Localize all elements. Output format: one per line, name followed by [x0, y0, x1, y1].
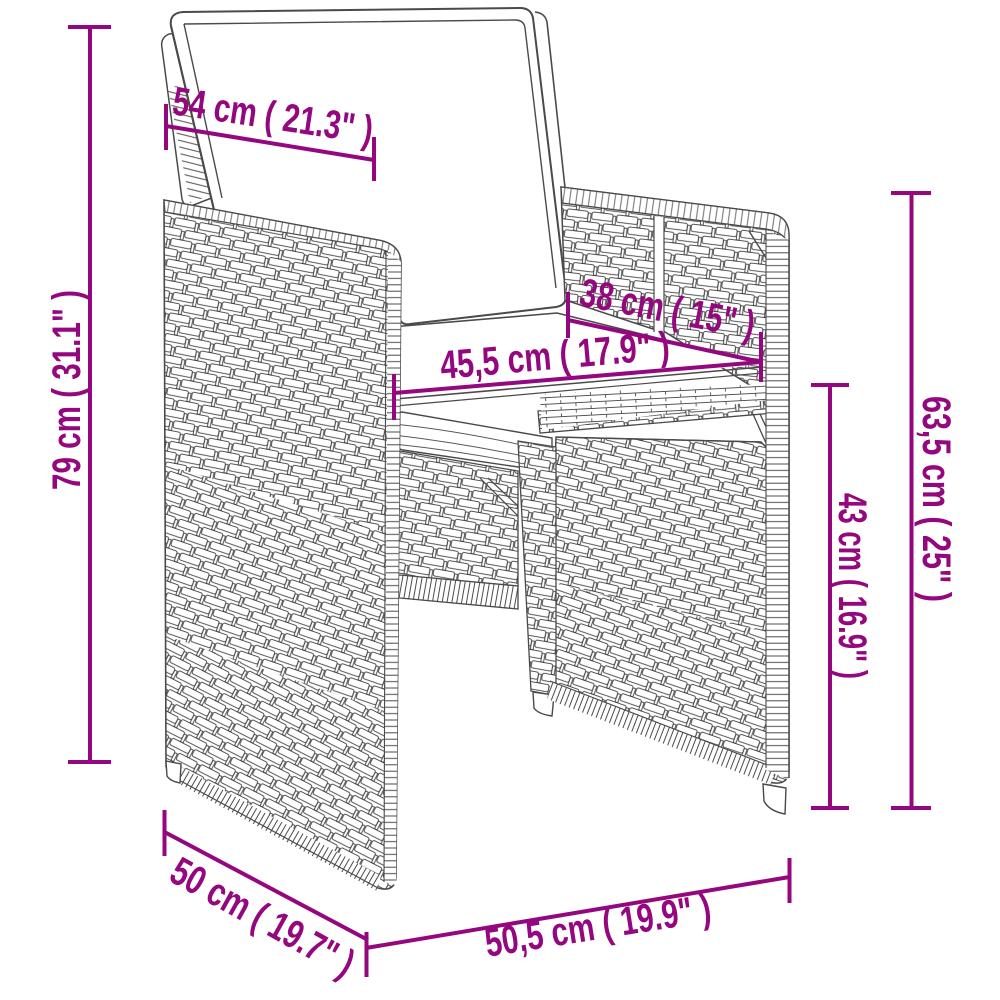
svg-text:50,5 cm ( 19.9" ): 50,5 cm ( 19.9" ): [482, 887, 714, 966]
svg-text:50 cm ( 19.7" ): 50 cm ( 19.7" ): [163, 849, 362, 986]
svg-text:79 cm ( 31.1" ): 79 cm ( 31.1" ): [45, 290, 89, 490]
svg-text:43 cm ( 16.9" ): 43 cm ( 16.9" ): [830, 493, 874, 679]
svg-text:63,5 cm ( 25" ): 63,5 cm ( 25" ): [914, 396, 958, 602]
